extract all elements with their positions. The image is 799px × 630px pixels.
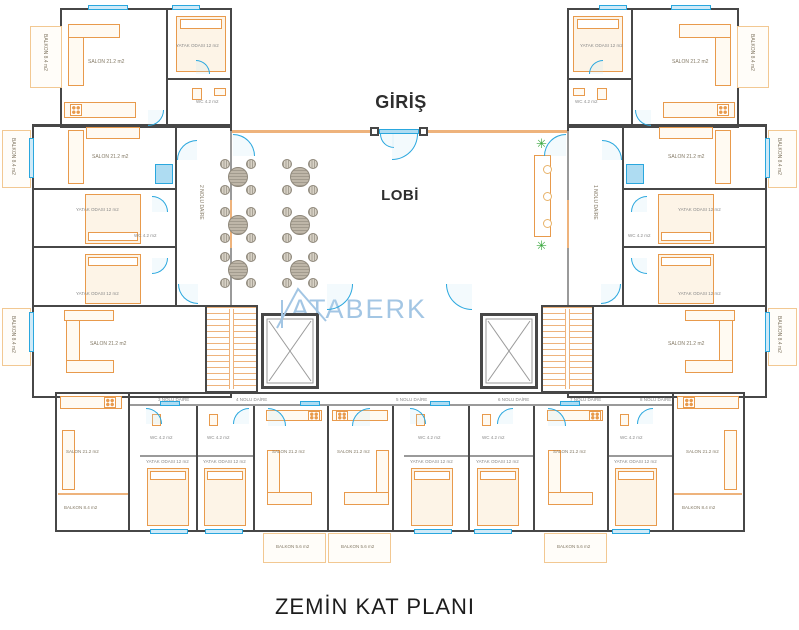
sofa: [679, 24, 731, 38]
sofa: [267, 492, 312, 505]
chair: [220, 252, 230, 262]
door-arc: [544, 134, 566, 156]
room-label-wc: WC 4.2 m2: [620, 436, 643, 441]
stove: [717, 104, 729, 116]
sofa: [66, 360, 114, 373]
wc-sink: [214, 88, 226, 96]
window: [205, 529, 243, 534]
window: [765, 138, 770, 178]
wall: [609, 455, 672, 457]
pillow: [88, 232, 138, 241]
pillow: [577, 19, 619, 29]
room-label-salon: SALON 21.2 m2: [686, 450, 719, 455]
sofa: [724, 430, 737, 490]
room-label-balcony: BALKON 8.4 m2: [64, 506, 97, 511]
apartment-label: 7 NOLU DAİRE: [570, 398, 601, 403]
wall: [624, 246, 767, 248]
stove: [683, 397, 695, 408]
chair: [220, 159, 230, 169]
wall: [470, 455, 533, 457]
desk-stool: [543, 219, 552, 228]
entrance-door-arc: [392, 134, 418, 160]
apartment-label: 8 NOLU DAİRE: [640, 398, 671, 403]
pillow: [150, 471, 186, 480]
door-panel: [626, 164, 644, 184]
room-label-salon: SALON 21.2 m2: [337, 450, 370, 455]
wall: [468, 406, 470, 532]
kitchen-counter: [86, 127, 140, 139]
pillow: [661, 232, 711, 241]
door-panel: [155, 164, 173, 184]
kitchen-counter: [659, 127, 713, 139]
pillow: [480, 471, 516, 480]
chair: [282, 207, 292, 217]
room-label-bedroom: YATAK ODASI 12 m2: [580, 44, 623, 49]
stove: [589, 411, 601, 421]
room-label-balcony: BALKON 5.6 m2: [341, 545, 374, 550]
chair: [308, 159, 318, 169]
wall: [166, 8, 168, 126]
wall-corridor: [622, 125, 624, 307]
chair: [282, 278, 292, 288]
room-label-wc: WC 4.2 m2: [482, 436, 505, 441]
room-label-bedroom: YATAK ODASI 12 m2: [76, 208, 119, 213]
wc-toilet: [209, 414, 218, 426]
apartment-label: 5 NOLU DAİRE: [396, 398, 427, 403]
sofa: [548, 492, 593, 505]
room-label-bedroom: YATAK ODASI 12 m2: [476, 460, 519, 465]
room-label-bedroom: YATAK ODASI 12 m2: [76, 292, 119, 297]
room-label-wc: WC 4.2 m2: [575, 100, 598, 105]
wall: [140, 455, 196, 457]
apartment-label: 6 NOLU DAİRE: [498, 398, 529, 403]
room-label-salon: SALON 21.2 m2: [672, 60, 708, 65]
room-label-balcony: BALKON 8.4 m2: [42, 34, 47, 71]
wall: [32, 188, 175, 190]
room-label-balcony: BALKON 8.4 m2: [682, 506, 715, 511]
room-label-bedroom: YATAK ODASI 12 m2: [176, 44, 219, 49]
wall: [631, 8, 633, 126]
room-label-wc: WC 4.2 m2: [196, 100, 219, 105]
chair: [220, 233, 230, 243]
balcony: [768, 130, 797, 188]
wall: [58, 493, 128, 495]
chair: [308, 278, 318, 288]
apartment-label: 4 NOLU DAİRE: [236, 398, 267, 403]
chair: [220, 207, 230, 217]
sofa: [62, 430, 75, 490]
window: [474, 529, 512, 534]
balcony: [2, 130, 31, 188]
chair: [308, 252, 318, 262]
door-panel: [430, 401, 450, 406]
table-top: [228, 215, 248, 235]
chair: [246, 278, 256, 288]
pillow: [661, 257, 711, 266]
room-label-bedroom: YATAK ODASI 12 m2: [614, 460, 657, 465]
room-label-salon: SALON 21.2 m2: [88, 60, 124, 65]
room-label-balcony: BALKON 8.4 m2: [10, 138, 15, 175]
wall: [196, 406, 198, 532]
room-label-salon: SALON 21.2 m2: [668, 342, 704, 347]
wc-sink: [573, 88, 585, 96]
room-label-bedroom: YATAK ODASI 12 m2: [203, 460, 246, 465]
dining-table: [282, 207, 318, 243]
pillow: [88, 257, 138, 266]
lobby-right-wall-orange: [567, 200, 569, 248]
wall: [567, 305, 767, 307]
room-label-wc: WC 4.2 m2: [150, 436, 173, 441]
chair: [246, 207, 256, 217]
wall: [198, 455, 253, 457]
window: [29, 312, 34, 352]
lobby-top-wall: [426, 130, 567, 133]
entrance-label: GİRİŞ: [355, 92, 447, 113]
sofa: [344, 492, 389, 505]
room-label-bedroom: YATAK ODASI 12 m2: [146, 460, 189, 465]
table-top: [290, 167, 310, 187]
wall-corridor: [175, 125, 177, 307]
dining-table: [282, 159, 318, 195]
room-label-wc: WC 4.2 m2: [418, 436, 441, 441]
door-jamb: [419, 127, 428, 136]
dining-table: [220, 207, 256, 243]
window: [172, 5, 200, 10]
wall: [32, 305, 232, 307]
window: [612, 529, 650, 534]
room-label-salon: SALON 21.2 m2: [553, 450, 586, 455]
wc-toilet: [597, 88, 607, 100]
room-label-bedroom: YATAK ODASI 12 m2: [678, 208, 721, 213]
lobby-label: LOBİ: [368, 187, 432, 204]
dining-table: [220, 159, 256, 195]
door-arc: [233, 134, 255, 156]
dining-table: [282, 252, 318, 288]
window: [150, 529, 188, 534]
stove: [336, 411, 348, 421]
pillow: [618, 471, 654, 480]
chair: [246, 159, 256, 169]
room-label-wc: WC 4.2 m2: [628, 234, 651, 239]
sofa: [68, 24, 120, 38]
elevator-left: [261, 313, 319, 389]
stove: [70, 104, 82, 116]
wall: [567, 78, 633, 80]
wall: [128, 392, 130, 532]
wc-toilet: [482, 414, 491, 426]
window: [88, 5, 128, 10]
window: [671, 5, 711, 10]
kitchen-counter: [685, 310, 735, 321]
desk-stool: [543, 165, 552, 174]
room-label-balcony: BALKON 8.4 m2: [749, 34, 754, 71]
pillow: [180, 19, 222, 29]
plan-title: ZEMİN KAT PLANI: [150, 594, 600, 620]
apartment-label: 1 NOLU DAİRE: [592, 185, 597, 220]
window: [29, 138, 34, 178]
room-label-balcony: BALKON 8.4 m2: [776, 316, 781, 353]
balcony: [768, 308, 797, 366]
sofa: [685, 360, 733, 373]
stove: [104, 397, 116, 408]
wc-toilet: [620, 414, 629, 426]
room-label-balcony: BALKON 8.4 m2: [776, 138, 781, 175]
window: [599, 5, 627, 10]
apartment-label: 3 NOLU DAİRE: [158, 398, 189, 403]
chair: [282, 252, 292, 262]
stair-rail: [229, 309, 234, 389]
room-label-bedroom: YATAK ODASI 12 m2: [410, 460, 453, 465]
door-arc: [446, 284, 472, 310]
room-label-salon: SALON 21.2 m2: [272, 450, 305, 455]
chair: [246, 233, 256, 243]
stove: [308, 411, 320, 421]
plant-icon: ✳: [536, 239, 547, 252]
floor-plan: GİRİŞ LOBİ ATABERK ZEMİN KAT PLANI ✳ ✳: [0, 0, 799, 630]
chair: [220, 185, 230, 195]
table-top: [228, 260, 248, 280]
room-label-bedroom: YATAK ODASI 12 m2: [678, 292, 721, 297]
chair: [282, 185, 292, 195]
room-label-balcony: BALKON 5.6 m2: [276, 545, 309, 550]
sofa: [68, 130, 84, 184]
wall: [404, 455, 468, 457]
wall: [32, 124, 232, 126]
wall: [327, 406, 329, 532]
room-label-wc: WC 4.2 m2: [134, 234, 157, 239]
wall: [392, 406, 394, 532]
corridor-wall: [128, 404, 672, 406]
chair: [308, 185, 318, 195]
wall: [166, 78, 232, 80]
elevator-right: [480, 313, 538, 389]
wall: [567, 124, 767, 126]
room-label-salon: SALON 21.2 m2: [90, 342, 126, 347]
room-label-wc: WC 4.2 m2: [207, 436, 230, 441]
desk-stool: [543, 192, 552, 201]
chair: [246, 185, 256, 195]
chair: [220, 278, 230, 288]
door-jamb: [370, 127, 379, 136]
wall: [253, 406, 255, 532]
sofa: [715, 130, 731, 184]
wall: [32, 246, 175, 248]
wall: [674, 493, 742, 495]
wall: [533, 406, 535, 532]
room-label-salon: SALON 21.2 m2: [668, 155, 704, 160]
chair: [308, 207, 318, 217]
room-label-balcony: BALKON 8.4 m2: [10, 316, 15, 353]
stair-rail: [565, 309, 570, 389]
balcony: [2, 308, 31, 366]
wall: [672, 392, 674, 532]
table-top: [290, 215, 310, 235]
table-top: [290, 260, 310, 280]
room-label-salon: SALON 21.2 m2: [66, 450, 99, 455]
pillow: [414, 471, 450, 480]
chair: [282, 159, 292, 169]
kitchen-counter: [64, 310, 114, 321]
table-top: [228, 167, 248, 187]
window: [765, 312, 770, 352]
pillow: [207, 471, 243, 480]
dining-table: [220, 252, 256, 288]
lobby-top-wall: [232, 130, 372, 133]
apartment-label: 2 NOLU DAİRE: [198, 185, 203, 220]
wall: [624, 188, 767, 190]
door-panel: [300, 401, 320, 406]
chair: [246, 252, 256, 262]
chair: [308, 233, 318, 243]
room-label-balcony: BALKON 5.6 m2: [557, 545, 590, 550]
window: [414, 529, 452, 534]
wall: [607, 406, 609, 532]
chair: [282, 233, 292, 243]
room-label-salon: SALON 21.2 m2: [92, 155, 128, 160]
